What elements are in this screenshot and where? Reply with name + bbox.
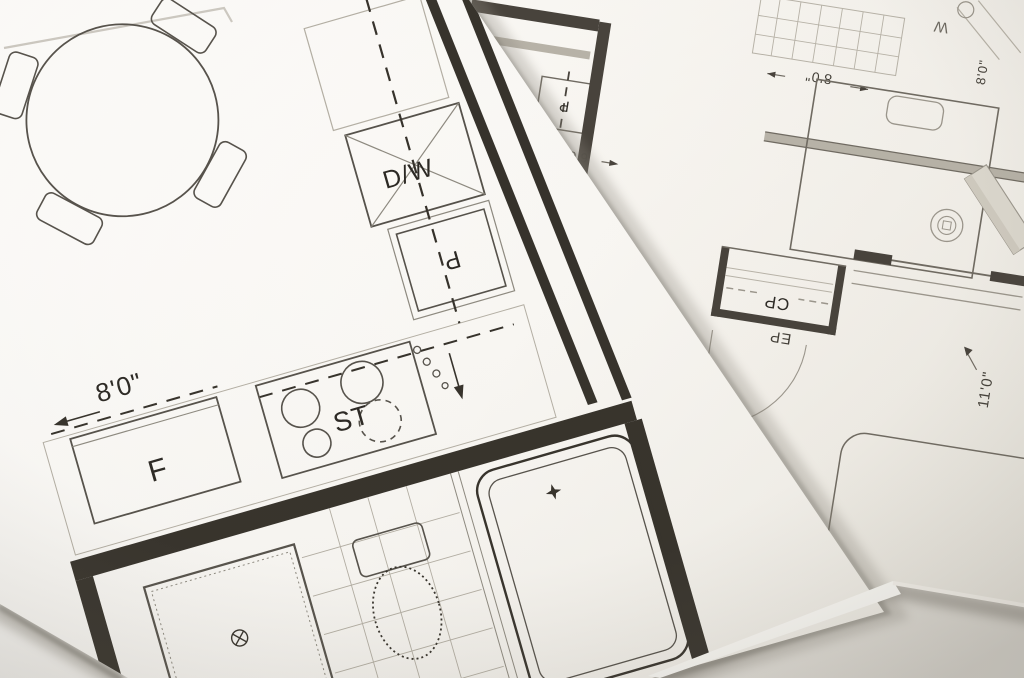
blueprint-photo: W 8'0" 8'0" <box>0 0 1024 678</box>
blueprint-photo-canvas: W 8'0" 8'0" <box>0 0 1024 678</box>
vignette <box>0 0 1024 678</box>
